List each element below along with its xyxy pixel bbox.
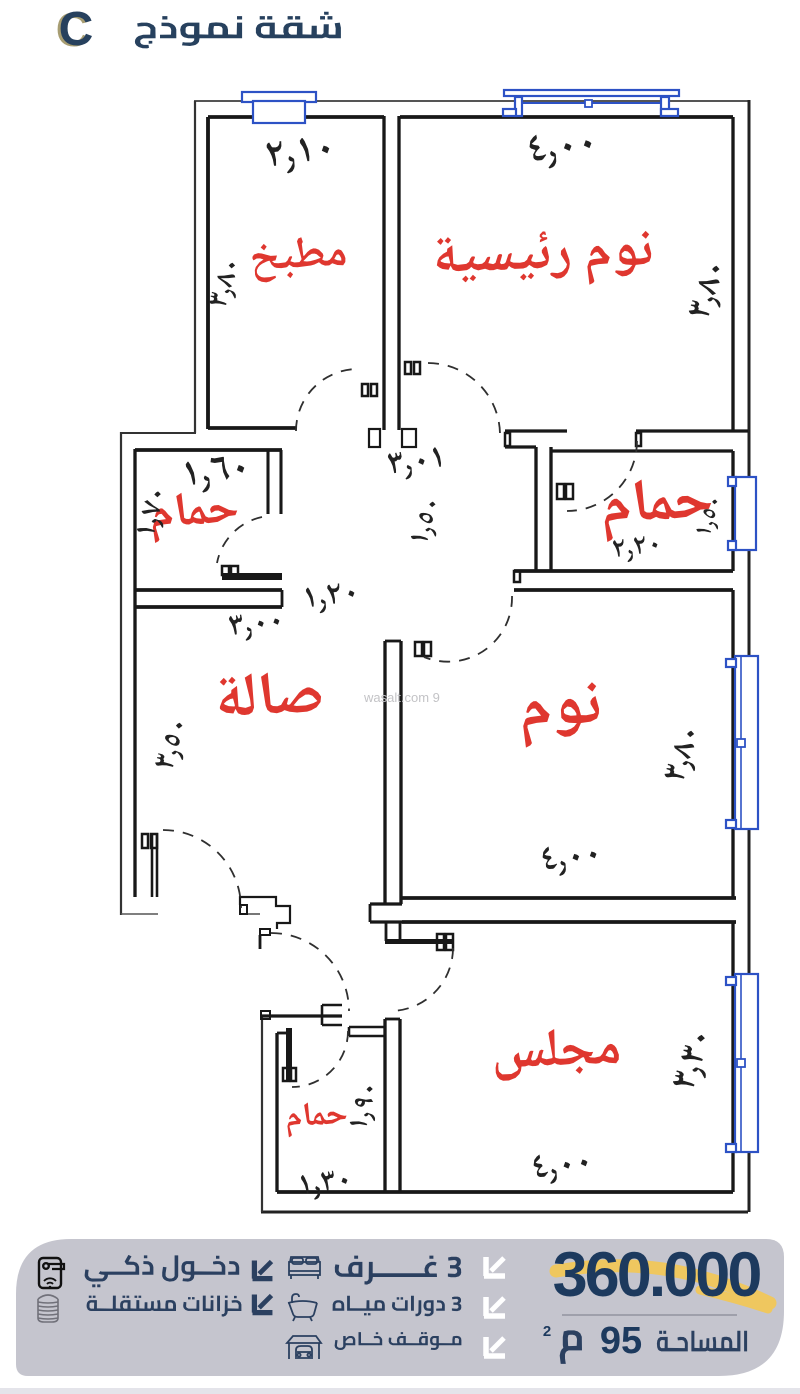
svg-text:C: C <box>59 3 94 56</box>
svg-text:360.000: 360.000 <box>553 1240 761 1310</box>
svg-text:95: 95 <box>600 1320 642 1362</box>
svg-text:wasalt.com 9: wasalt.com 9 <box>363 690 440 705</box>
svg-text:2: 2 <box>543 1323 551 1340</box>
